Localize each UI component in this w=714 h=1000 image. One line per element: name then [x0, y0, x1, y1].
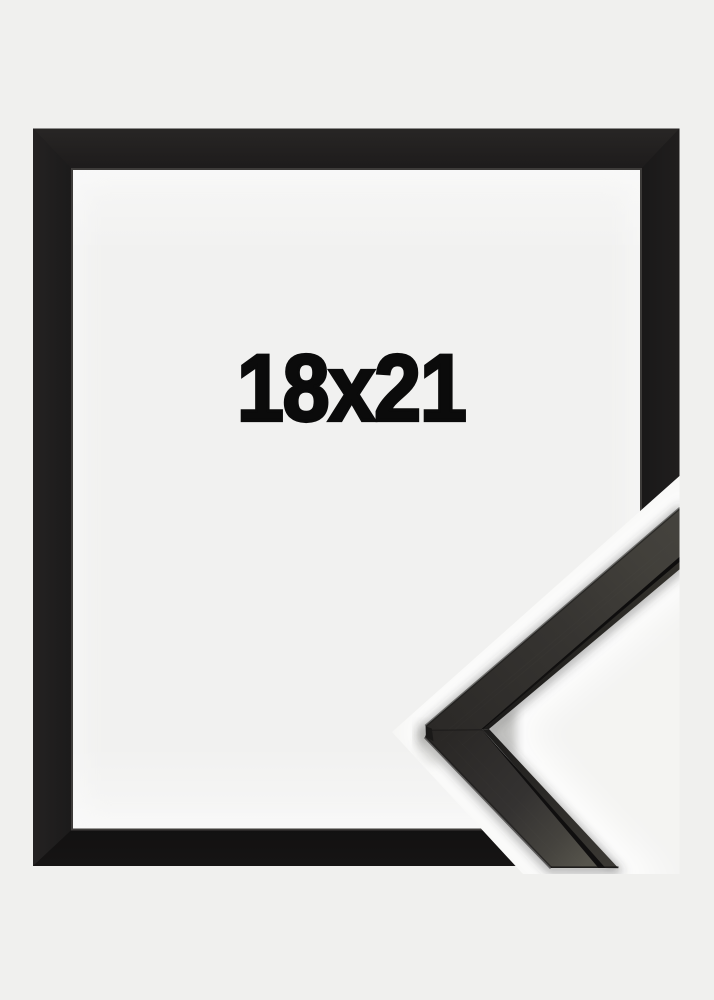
svg-text:18x21: 18x21 [237, 336, 466, 441]
